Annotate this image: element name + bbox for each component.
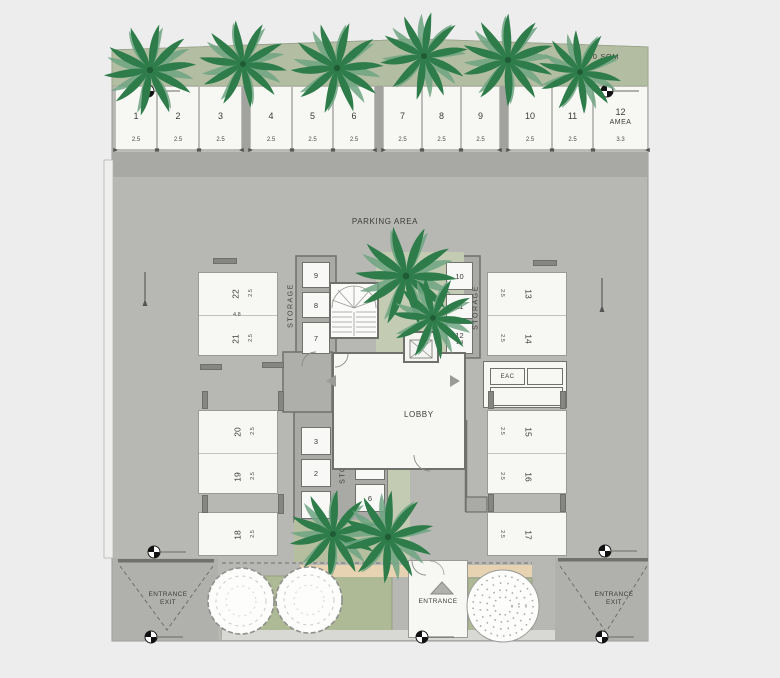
pilaster: [488, 494, 494, 512]
storage-unit: 1: [301, 491, 331, 519]
stall-dim: 3.3: [616, 137, 624, 143]
stall-dim: 2.5: [526, 137, 534, 143]
pilaster: [560, 391, 566, 409]
stall-number: 15: [524, 427, 534, 436]
pilaster: [278, 494, 284, 514]
stall-number: 17: [524, 530, 534, 539]
unit-number: 2: [314, 469, 318, 478]
stall-dim: 2.5: [174, 137, 182, 143]
wheel-stop: [262, 362, 284, 368]
unit-number: 12: [455, 331, 463, 340]
exit-word: EXIT: [160, 599, 176, 606]
parking-stall: 10 2.5: [508, 86, 552, 152]
parking-block-east-lower: 15 2.5 16 2.5: [487, 410, 567, 494]
utility-room: [527, 368, 563, 385]
wheel-stop: [533, 260, 557, 266]
sidewalk-strip: [222, 630, 555, 640]
stall-dim: 2.5: [499, 530, 505, 538]
elevator-dim: 1.8: [414, 336, 422, 342]
amea-label: AMEA: [610, 119, 632, 126]
stall-number: 3: [218, 111, 223, 121]
parking-stall: 9 2.5: [461, 86, 500, 152]
storage-unit: 11: [446, 294, 473, 319]
pilaster: [202, 391, 208, 409]
entrance-exit-left-label: ENTRANCE EXIT: [128, 591, 208, 608]
parking-stall-amea: 12 AMEA 3.3: [593, 86, 648, 152]
stall-number: 7: [400, 111, 405, 121]
area-note: 60 SQM: [588, 52, 619, 61]
entrance-word: ENTRANCE: [595, 591, 634, 598]
tree-bed-left: [222, 576, 392, 638]
pilaster: [488, 391, 494, 409]
exit-word: EXIT: [606, 599, 622, 606]
unit-number: 3: [314, 437, 318, 446]
stall-pillar: [500, 86, 508, 152]
stall-number: 6: [351, 111, 356, 121]
unit-number: 8: [314, 301, 318, 310]
parking-block-west-lower: 20 2.5 19 2.5: [198, 410, 278, 494]
width-dim: 4.8: [233, 312, 241, 318]
unit-number: 6: [368, 494, 372, 503]
stall-dim: 2.5: [250, 472, 256, 480]
stall-dim: 2.5: [350, 137, 358, 143]
entrance-word: ENTRANCE: [149, 591, 188, 598]
storage-unit: 7: [302, 322, 330, 354]
landscape-strip: [112, 39, 648, 86]
pilaster: [278, 391, 284, 411]
east-connector: [466, 497, 487, 512]
stall-number: 20: [233, 427, 243, 436]
storage-unit: 12 1.4: [446, 323, 473, 354]
parking-stall: 20 2.5: [199, 411, 277, 453]
drive-aisle-band: [112, 152, 648, 177]
storage-unit: 10: [446, 262, 473, 290]
parking-block-west-upper: 22 2.5 21 2.5 4.8: [198, 272, 278, 356]
stall-dim: 2.5: [308, 137, 316, 143]
stall-dim: 2.5: [248, 334, 254, 342]
parking-stall: 13 2.5: [488, 273, 566, 315]
unit-number-with-dim: 12 1.4: [455, 331, 463, 347]
storage-unit: 3: [301, 427, 331, 455]
stall-number: 18: [233, 530, 243, 539]
stall-number: 13: [524, 289, 534, 298]
stall-number: 8: [439, 111, 444, 121]
stall-dim: 2.5: [499, 289, 505, 297]
wheel-stop: [213, 258, 237, 264]
unit-dim: 1.4: [455, 340, 463, 347]
stall-dim: 2.5: [216, 137, 224, 143]
stall-dim: 2.5: [499, 472, 505, 480]
driveway-left-wall: [118, 559, 214, 563]
parking-stall: 14 2.5: [488, 315, 566, 356]
parking-area-label: PARKING AREA: [340, 217, 430, 226]
stall-number: 11: [568, 111, 577, 121]
eac-room: EAC: [490, 368, 525, 385]
stall-number: 12: [615, 107, 625, 117]
storage-unit: 9: [302, 262, 330, 288]
west-boundary-wall: [104, 160, 113, 558]
west-corridor: [283, 352, 332, 412]
storage-label-ne: STORAGE: [473, 280, 480, 336]
stall-number: 2: [175, 111, 180, 121]
stall-dim: 2.5: [248, 289, 254, 297]
parking-stall-18: 18 2.5: [198, 512, 278, 556]
stall-dim: 2.5: [476, 137, 484, 143]
stall-number: 21: [231, 334, 241, 343]
stall-dim: 2.5: [499, 334, 505, 342]
pilaster: [202, 495, 208, 513]
parking-stall: 22 2.5: [199, 273, 277, 315]
parking-stall: 11 2.5: [552, 86, 593, 152]
wheel-stop: [200, 364, 222, 370]
unit-number: 9: [314, 271, 318, 280]
parking-stall: 7 2.5: [383, 86, 422, 152]
parking-stall: 2 2.5: [157, 86, 199, 152]
unit-number: 10: [455, 272, 463, 281]
stall-number: 9: [478, 111, 483, 121]
utility-room: [490, 387, 563, 406]
parking-stall: 16 2.5: [488, 453, 566, 494]
stall-dim: 2.5: [568, 137, 576, 143]
stall-dim: 2.5: [437, 137, 445, 143]
stall-number: 5: [310, 111, 315, 121]
storage-south-bed: [294, 520, 388, 562]
pilaster: [560, 494, 566, 512]
stall-number: 4: [268, 111, 273, 121]
entrance-exit-right-label: ENTRANCE EXIT: [574, 591, 654, 608]
parking-stall: 15 2.5: [488, 411, 566, 453]
parking-stall: 4 2.5: [250, 86, 292, 152]
parking-stall: 3 2.5: [199, 86, 242, 152]
stall-dim: 2.5: [267, 137, 275, 143]
storage-unit: 6: [355, 484, 385, 512]
parking-stall: 19 2.5: [199, 453, 277, 494]
stall-dim: 2.5: [250, 530, 256, 538]
stall-number: 19: [233, 472, 243, 481]
parking-stall: 1 2.5: [115, 86, 157, 152]
storage-unit: 8: [302, 292, 330, 318]
storage-label-nw: STORAGE: [288, 278, 295, 334]
tree-bed-right: [468, 578, 532, 636]
lobby-room: [332, 352, 466, 470]
stall-number: 22: [231, 289, 241, 298]
floor-plan-canvas: 1 2.5 2 2.5 3 2.5 4 2.5 5 2.5 6 2.5 7 2.…: [0, 0, 780, 678]
unit-number: 7: [314, 334, 318, 343]
stall-dim: 2.5: [250, 427, 256, 435]
lobby-label: LOBBY: [404, 410, 434, 419]
storage-unit: 2: [301, 459, 331, 487]
unit-number: 11: [456, 302, 464, 311]
parking-stall: 6 2.5: [333, 86, 375, 152]
stall-number: 14: [524, 334, 534, 343]
parking-stall: 8 2.5: [422, 86, 461, 152]
driveway-right-wall: [558, 558, 648, 562]
stall-dim: 2.5: [132, 137, 140, 143]
stall-number: 10: [525, 111, 535, 121]
parking-stall: 5 2.5: [292, 86, 333, 152]
parking-block-east-upper: 13 2.5 14 2.5: [487, 272, 567, 356]
stall-pillar: [375, 86, 383, 152]
stall-number: 1: [133, 111, 138, 121]
stall-pillar: [242, 86, 250, 152]
stall-dim: 2.5: [398, 137, 406, 143]
entrance-label: ENTRANCE: [405, 598, 471, 605]
unit-number: 1: [314, 501, 318, 510]
parking-stall-17: 17 2.5: [487, 512, 567, 556]
parking-stall: 21 2.5 4.8: [199, 315, 277, 356]
eac-label: EAC: [501, 374, 515, 380]
stall-number: 16: [524, 472, 534, 481]
stall-dim: 2.5: [499, 427, 505, 435]
